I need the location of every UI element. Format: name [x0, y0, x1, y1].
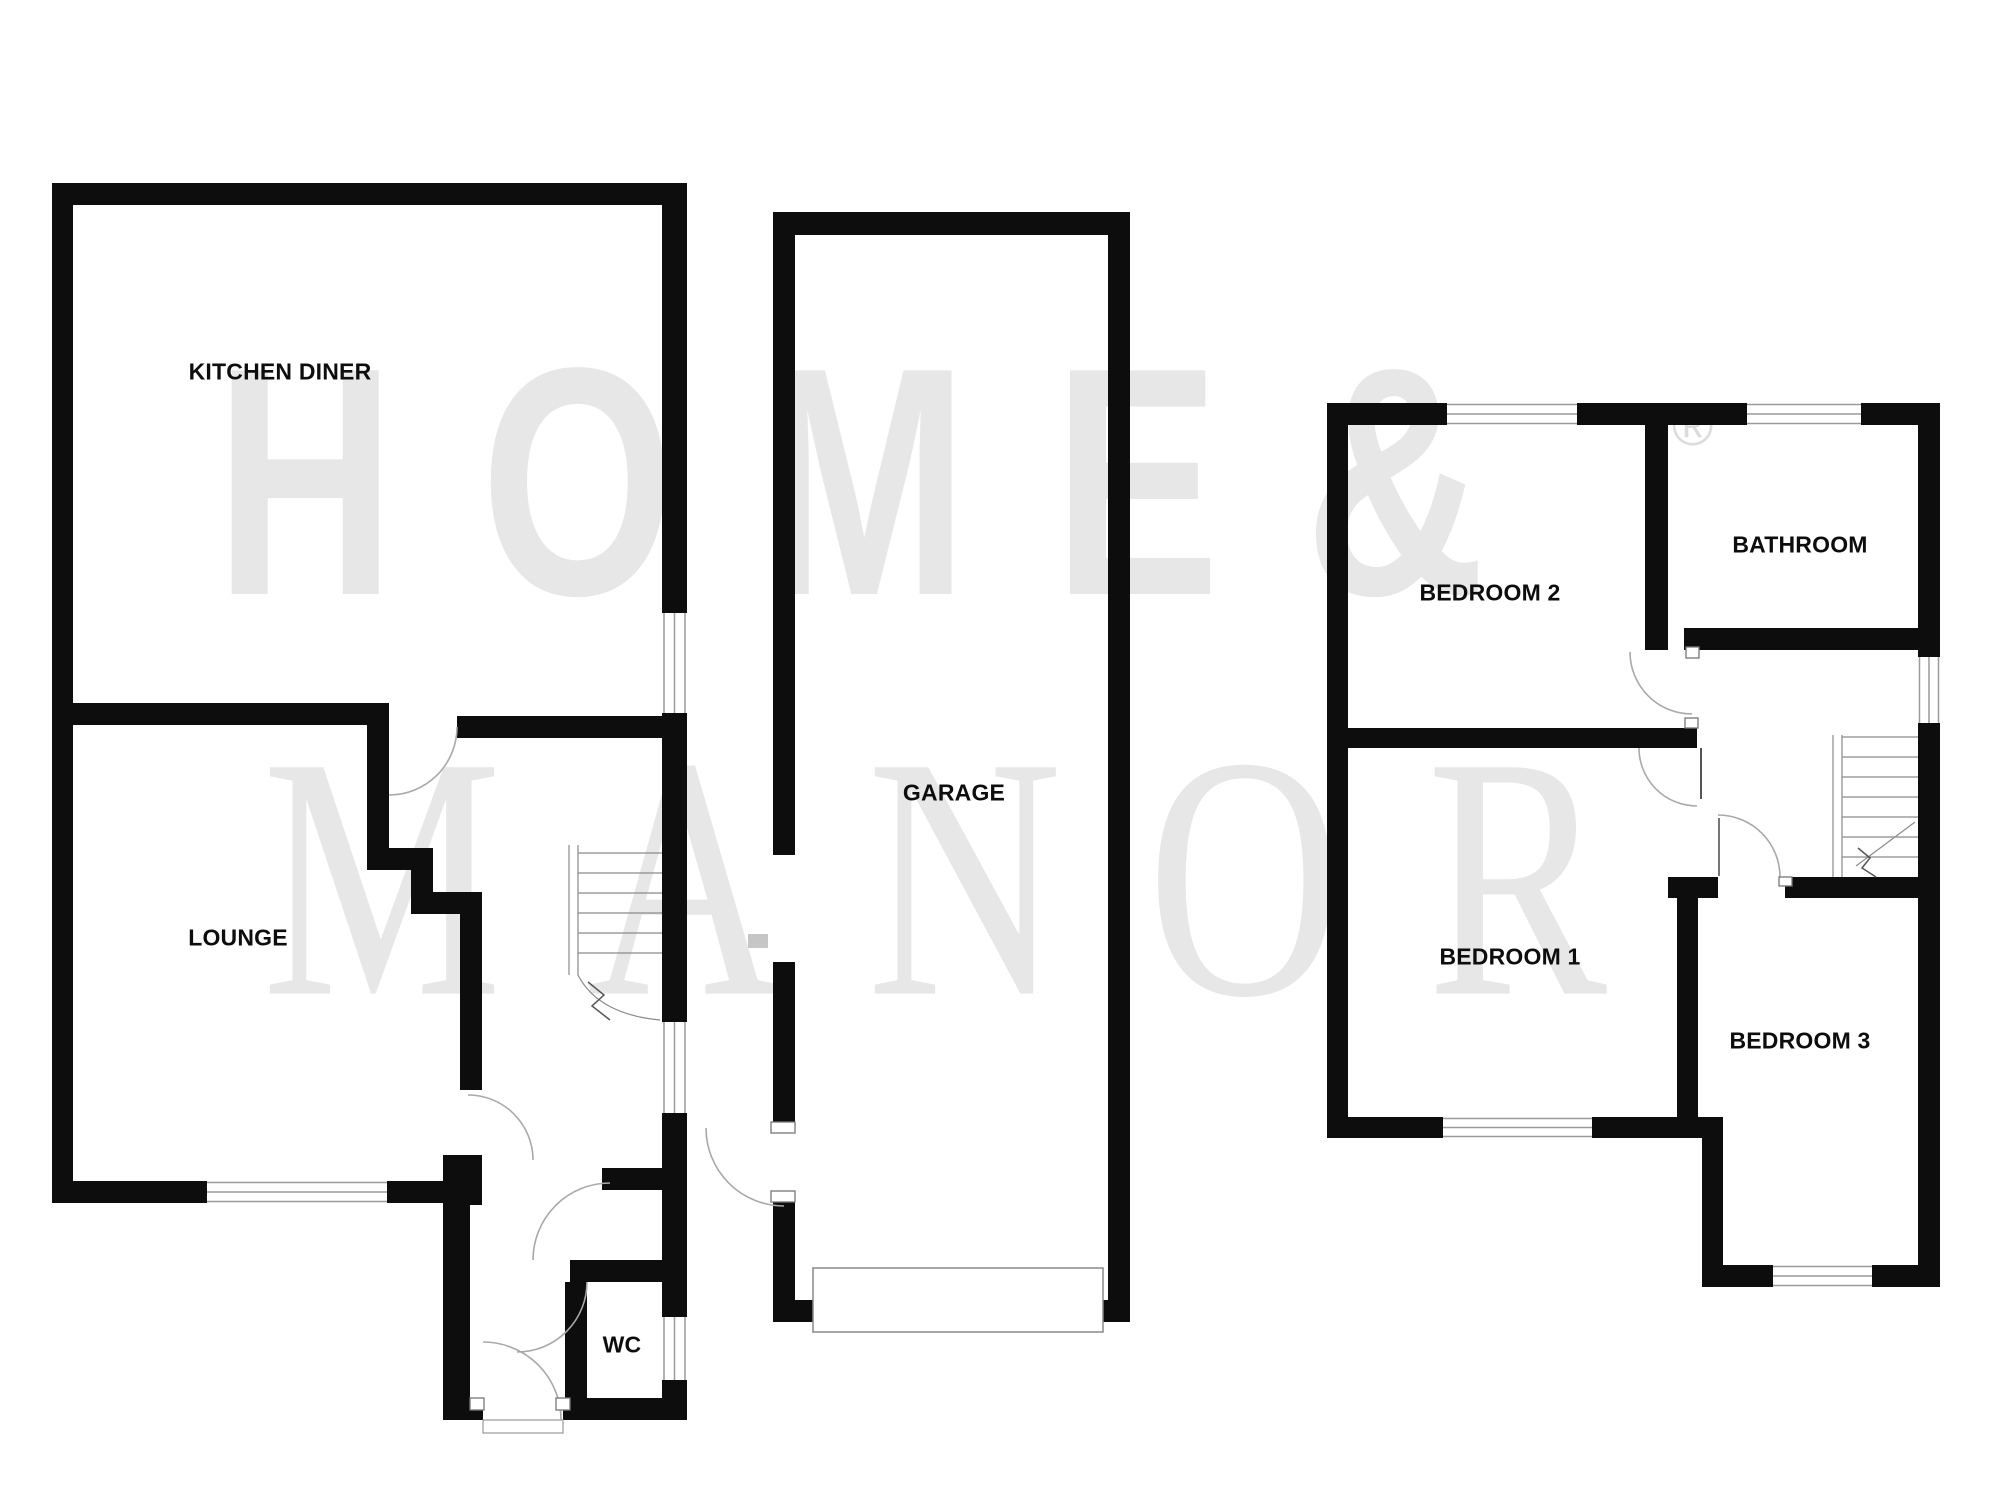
room-label-bathroom: BATHROOM: [1732, 532, 1867, 559]
room-label-lounge: LOUNGE: [188, 925, 288, 952]
door-jamb-marker: [771, 1122, 795, 1133]
room-kitchen-diner: [73, 205, 662, 703]
door-jamb-marker: [771, 1191, 795, 1202]
door-jamb-marker: [556, 1398, 570, 1410]
garage-building: [706, 212, 1130, 1332]
window: [1747, 403, 1861, 425]
door-jamb-marker: [1779, 877, 1792, 886]
room-bedroom-1: [1348, 748, 1677, 1117]
room-bedroom-2: [1348, 425, 1645, 728]
room-label-wc: WC: [603, 1332, 642, 1359]
window: [662, 613, 687, 713]
door-jamb-marker: [1686, 647, 1699, 658]
window: [1918, 657, 1940, 723]
kitchen-door-arc: [389, 727, 457, 795]
room-lounge: [73, 725, 367, 1181]
room-label-bedroom-3: BEDROOM 3: [1729, 1028, 1870, 1055]
staircase-ground: [569, 845, 662, 1020]
window: [1447, 403, 1577, 425]
room-label-bedroom-1: BEDROOM 1: [1439, 944, 1580, 971]
room-bathroom: [1668, 425, 1918, 628]
front-door-threshold: [483, 1420, 563, 1433]
front-door-arc: [483, 1342, 561, 1420]
room-label-garage: GARAGE: [903, 780, 1005, 807]
garage-wall-stub: [748, 934, 768, 948]
garage-door: [813, 1268, 1103, 1332]
cupboard-door-arc: [533, 1183, 610, 1260]
door-jamb-marker: [1685, 718, 1698, 728]
room-label-kitchen-diner: KITCHEN DINER: [189, 359, 372, 386]
room-garage: [795, 235, 1108, 1300]
window: [207, 1181, 387, 1203]
window: [1773, 1265, 1872, 1287]
window: [1443, 1117, 1592, 1138]
floorplan-drawing: [0, 0, 2000, 1499]
window: [662, 1022, 687, 1113]
window: [662, 1317, 687, 1380]
door-jamb-marker: [470, 1398, 484, 1410]
staircase-first: [1833, 735, 1918, 877]
lounge-door-arc: [468, 1095, 533, 1160]
floorplan-canvas: HOME& MANOR ®: [0, 0, 2000, 1499]
room-bedroom-3: [1698, 898, 1918, 1265]
room-label-bedroom-2: BEDROOM 2: [1419, 580, 1560, 607]
bedroom3-door-arc: [1718, 815, 1780, 877]
